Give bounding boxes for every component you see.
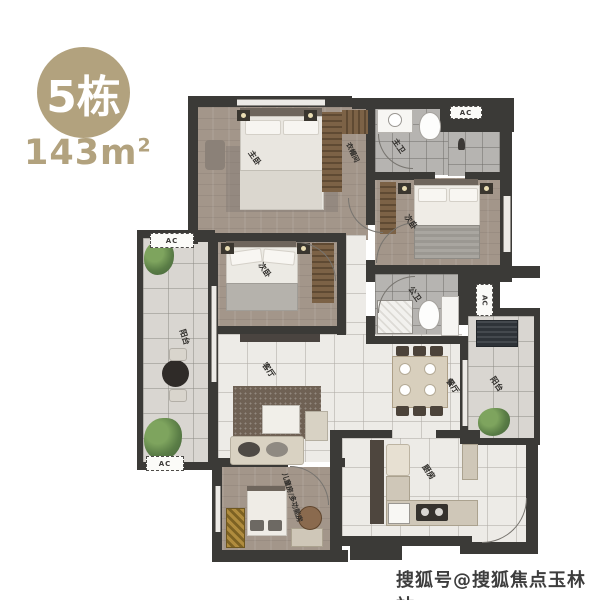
ac-label-text: AC [159, 460, 172, 468]
watermark-text: 搜狐号@搜狐焦点玉林站 [396, 566, 600, 600]
fridge [386, 444, 410, 476]
kids-pillow [268, 520, 282, 531]
wall-kids-bottom [212, 550, 348, 562]
floor-plan-image: 5栋 143m2 [0, 0, 600, 600]
area-label: 143m2 [24, 133, 152, 173]
ceiling-light-icon [304, 110, 317, 121]
side-table [305, 411, 328, 441]
plate-icon [424, 363, 436, 375]
toilet-icon [418, 300, 440, 330]
bedroom2-pillow-right [449, 188, 478, 202]
master-bed-blanket [240, 170, 322, 209]
wall-left-upper [188, 96, 198, 244]
building-badge: 5栋 [37, 47, 130, 138]
ac-label-text: AC [460, 109, 473, 117]
hallway-floor [448, 130, 500, 176]
sofa-cushion [238, 442, 260, 457]
building-badge-label: 5栋 [46, 61, 121, 125]
ceiling-light-icon [398, 183, 411, 194]
coffee-table [262, 405, 300, 434]
figure-icon [458, 138, 465, 150]
wall-kitchen-top-b [436, 430, 480, 438]
balcony-table [162, 360, 189, 387]
window-balcony-divider [211, 286, 217, 382]
bedroom3-blanket [226, 283, 298, 311]
kitchen-sink-icon [388, 503, 410, 524]
stove-burner-icon [435, 508, 443, 516]
master-bench [205, 140, 225, 170]
wall-bedroom3-right [337, 240, 346, 335]
window-bedroom2-right [503, 196, 511, 252]
kids-bed-headboard [247, 486, 285, 491]
plate-icon [399, 384, 411, 396]
stove-burner-icon [421, 508, 429, 516]
dining-chair [430, 406, 443, 416]
balcony-chair [169, 389, 187, 402]
ac-label-balcony-top: AC [150, 233, 194, 248]
wall-living-top [215, 326, 345, 334]
upper-cabinet [462, 444, 478, 480]
master-bed-pillow-left [245, 120, 281, 135]
closet-shelf-top [342, 110, 368, 134]
wall-entry-right [526, 444, 538, 548]
wall-balcony-left-rail [137, 230, 143, 470]
dining-chair [413, 346, 426, 356]
kids-dresser [291, 528, 323, 547]
ac-outdoor-unit [476, 320, 518, 347]
vanity-sink [441, 296, 459, 336]
master-bed-pillow-right [283, 120, 319, 135]
sofa-cushion [266, 442, 288, 457]
tall-cabinet [370, 440, 384, 524]
balcony-chair [169, 348, 187, 361]
area-value: 143m [24, 133, 138, 173]
closet-shelf-vertical [322, 112, 342, 192]
ac-label-top-right: AC [450, 106, 482, 119]
bedroom2-pillow-left [418, 188, 447, 202]
wall-bath2-bottom [375, 336, 468, 344]
tv-wall [240, 334, 320, 342]
wall-balcony-right-rail [534, 312, 540, 444]
dining-chair [413, 406, 426, 416]
wall-bath2-left-a [366, 272, 375, 282]
dining-chair [430, 346, 443, 356]
kids-screen-decor [226, 508, 245, 548]
ceiling-light-icon [480, 183, 493, 194]
ac-label-balcony-bottom: AC [146, 456, 184, 471]
dining-chair [396, 346, 409, 356]
ceiling-light-icon [237, 110, 250, 121]
plate-icon [399, 363, 411, 375]
window-kids-left [215, 486, 221, 532]
bedroom2-blanket [414, 225, 480, 259]
dining-chair [396, 406, 409, 416]
ac-label-right-platform: AC [476, 284, 493, 316]
ceiling-light-icon [221, 243, 234, 254]
wall-entry-step [350, 544, 402, 560]
ac-label-text: AC [481, 295, 489, 306]
sink-basin-icon [388, 113, 402, 127]
wall-bath2-left-b [366, 316, 375, 344]
toilet-icon [419, 112, 441, 140]
window-master-top [237, 99, 325, 106]
wall-kids-kitchen [330, 430, 342, 552]
area-exponent: 2 [138, 134, 152, 156]
plate-icon [424, 384, 436, 396]
ac-label-text: AC [166, 237, 179, 245]
window-dining-balcony [462, 360, 468, 426]
corridor-floor [346, 235, 366, 335]
kids-pillow [250, 520, 264, 531]
wall-kitchen-top-a [342, 430, 392, 438]
